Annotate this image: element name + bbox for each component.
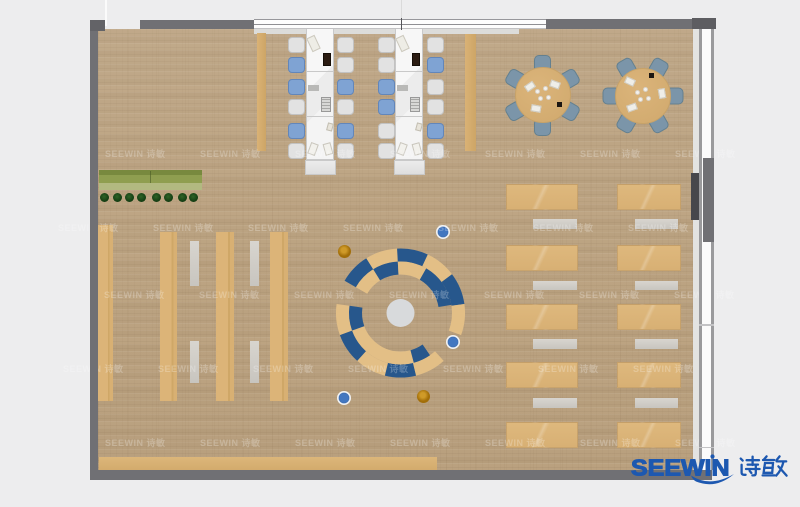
svg-text:SEEWIN: SEEWIN bbox=[631, 455, 730, 481]
